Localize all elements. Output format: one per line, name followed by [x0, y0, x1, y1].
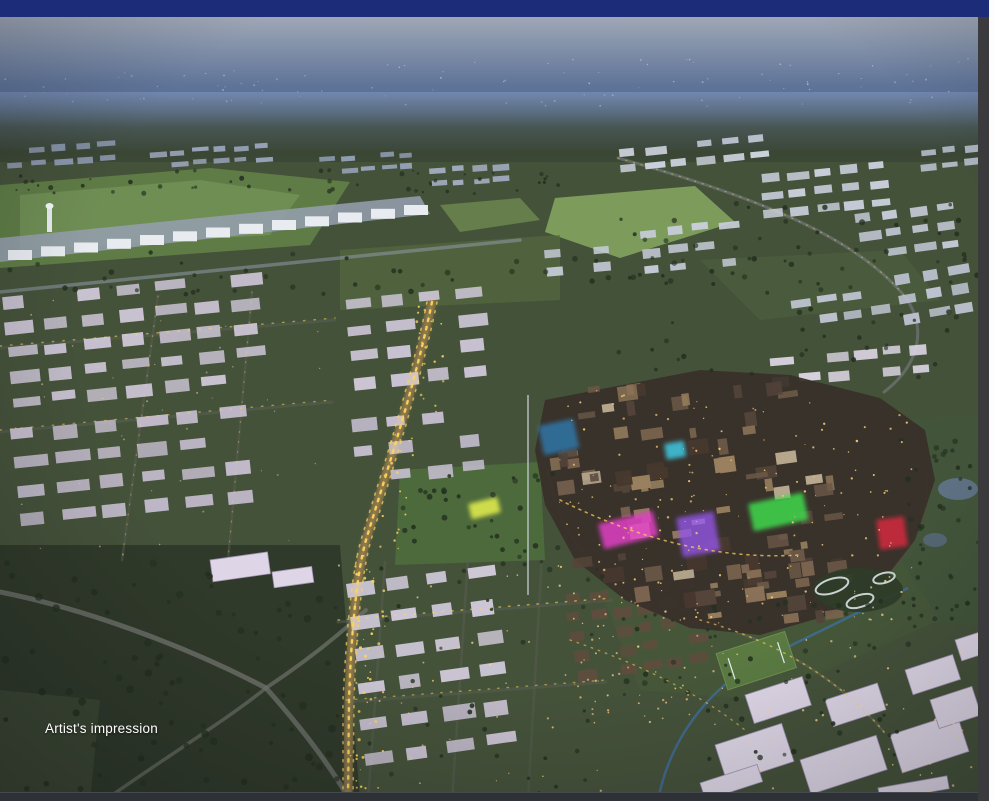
- aerial-render: [0, 0, 978, 801]
- artists-impression-photo: Artist's impression: [0, 0, 978, 801]
- photo-caption: Artist's impression: [45, 721, 158, 736]
- right-edge-strip: [978, 17, 989, 801]
- page: Artist's impression: [0, 0, 994, 801]
- top-navy-bar: [0, 0, 989, 17]
- vignette: [0, 0, 978, 801]
- page-edge-white: [989, 0, 994, 801]
- bottom-dark-bar: [0, 792, 989, 801]
